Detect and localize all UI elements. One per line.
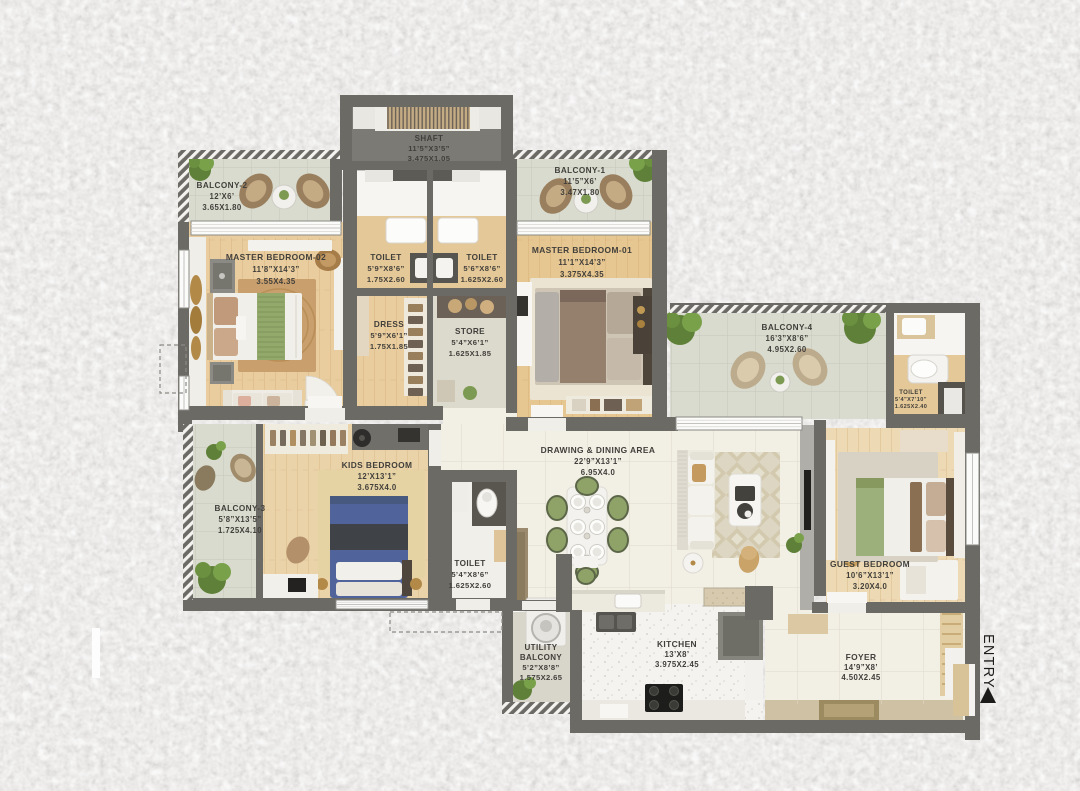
- svg-text:12’X6’: 12’X6’: [210, 192, 235, 201]
- svg-text:FOYER: FOYER: [846, 652, 877, 662]
- svg-text:TOILET: TOILET: [899, 390, 923, 396]
- svg-text:1.575X2.65: 1.575X2.65: [520, 673, 563, 682]
- svg-text:1.75X2.60: 1.75X2.60: [367, 275, 405, 284]
- svg-text:DRESS: DRESS: [374, 320, 404, 329]
- svg-text:TOILET: TOILET: [370, 253, 401, 262]
- svg-text:3.55X4.35: 3.55X4.35: [256, 277, 295, 286]
- svg-text:14’9”X8’: 14’9”X8’: [844, 663, 878, 672]
- svg-text:1.625X2.60: 1.625X2.60: [461, 275, 504, 284]
- svg-text:BALCONY: BALCONY: [520, 653, 563, 662]
- svg-text:4.95X2.60: 4.95X2.60: [767, 345, 806, 354]
- svg-text:3.65X1.80: 3.65X1.80: [202, 203, 241, 212]
- svg-text:16’3”X8’6”: 16’3”X8’6”: [765, 334, 808, 343]
- svg-text:3.975X2.45: 3.975X2.45: [655, 660, 699, 669]
- svg-text:BALCONY-4: BALCONY-4: [762, 323, 813, 332]
- svg-text:MASTER BEDROOM-01: MASTER BEDROOM-01: [532, 245, 632, 255]
- svg-text:5’4”X8’6”: 5’4”X8’6”: [451, 570, 488, 579]
- svg-text:KIDS BEDROOM: KIDS BEDROOM: [342, 460, 413, 470]
- svg-text:5’8”X13’5”: 5’8”X13’5”: [218, 515, 261, 524]
- svg-text:TOILET: TOILET: [454, 559, 485, 568]
- svg-text:BALCONY-2: BALCONY-2: [197, 181, 248, 190]
- svg-text:MASTER BEDROOM-02: MASTER BEDROOM-02: [226, 252, 326, 262]
- svg-text:SHAFT: SHAFT: [415, 134, 444, 143]
- svg-text:STORE: STORE: [455, 327, 485, 336]
- svg-text:5’4”X7’10”: 5’4”X7’10”: [895, 397, 927, 403]
- svg-text:1.75X1.85: 1.75X1.85: [370, 342, 409, 351]
- svg-text:1.625X1.85: 1.625X1.85: [449, 349, 492, 358]
- svg-text:5’2”X8’8”: 5’2”X8’8”: [522, 663, 559, 672]
- svg-text:KITCHEN: KITCHEN: [657, 639, 697, 649]
- svg-text:3.47X1.80: 3.47X1.80: [560, 188, 599, 197]
- svg-text:10’6”X13’1”: 10’6”X13’1”: [846, 571, 894, 580]
- svg-text:13’X8’: 13’X8’: [665, 650, 690, 659]
- svg-text:5’9”X8’6”: 5’9”X8’6”: [367, 264, 404, 273]
- svg-text:1.625X2.40: 1.625X2.40: [895, 404, 928, 410]
- svg-text:UTILITY: UTILITY: [524, 643, 557, 652]
- svg-text:11’8”X14’3”: 11’8”X14’3”: [252, 265, 299, 274]
- svg-text:5’9”X6’1”: 5’9”X6’1”: [370, 331, 407, 340]
- svg-text:11’5”X6’: 11’5”X6’: [563, 177, 597, 186]
- svg-text:11’5”X3’5”: 11’5”X3’5”: [408, 144, 450, 153]
- svg-text:TOILET: TOILET: [466, 253, 497, 262]
- svg-text:5’4”X6’1”: 5’4”X6’1”: [451, 338, 488, 347]
- svg-text:6.95X4.0: 6.95X4.0: [581, 468, 616, 477]
- svg-text:3.475X1.05: 3.475X1.05: [408, 154, 451, 163]
- svg-text:BALCONY-3: BALCONY-3: [215, 504, 266, 513]
- svg-text:22’9”X13’1”: 22’9”X13’1”: [574, 457, 622, 466]
- svg-text:1.725X4.10: 1.725X4.10: [218, 526, 262, 535]
- svg-text:3.20X4.0: 3.20X4.0: [853, 582, 888, 591]
- svg-text:12’X13’1”: 12’X13’1”: [358, 472, 397, 481]
- svg-text:5’6”X8’6”: 5’6”X8’6”: [463, 264, 500, 273]
- svg-text:ENTRY: ENTRY: [980, 634, 996, 689]
- svg-text:3.675X4.0: 3.675X4.0: [357, 483, 396, 492]
- svg-text:BALCONY-1: BALCONY-1: [555, 166, 606, 175]
- svg-text:1.625X2.60: 1.625X2.60: [449, 581, 492, 590]
- svg-text:11’1”X14’3”: 11’1”X14’3”: [558, 258, 605, 267]
- svg-text:4.50X2.45: 4.50X2.45: [841, 673, 880, 682]
- svg-text:GUEST BEDROOM: GUEST BEDROOM: [830, 559, 910, 569]
- svg-text:3.375X4.35: 3.375X4.35: [560, 270, 604, 279]
- svg-text:DRAWING & DINING AREA: DRAWING & DINING AREA: [541, 445, 656, 455]
